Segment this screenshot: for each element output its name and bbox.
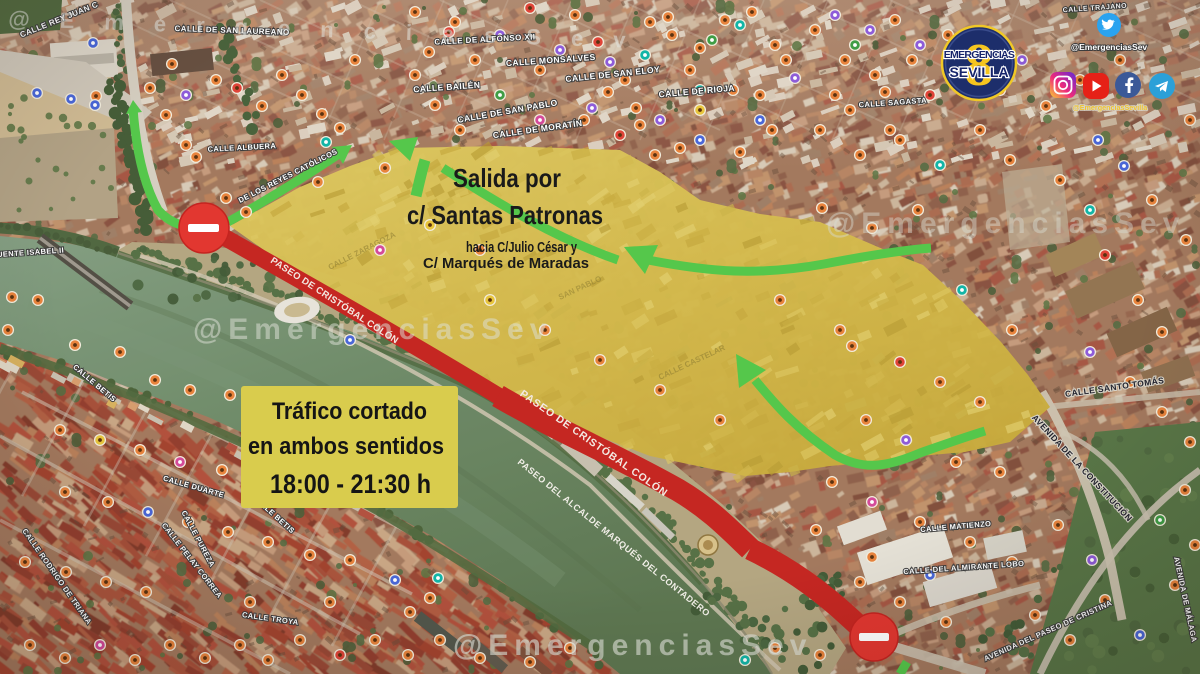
- svg-text:@EmergenciasSev: @EmergenciasSev: [1071, 42, 1148, 52]
- svg-text:SEVILLA: SEVILLA: [949, 64, 1008, 80]
- svg-text:EMERGENCIAS: EMERGENCIAS: [944, 49, 1015, 61]
- svg-text:@EmergenciasSevilla: @EmergenciasSevilla: [1073, 103, 1149, 112]
